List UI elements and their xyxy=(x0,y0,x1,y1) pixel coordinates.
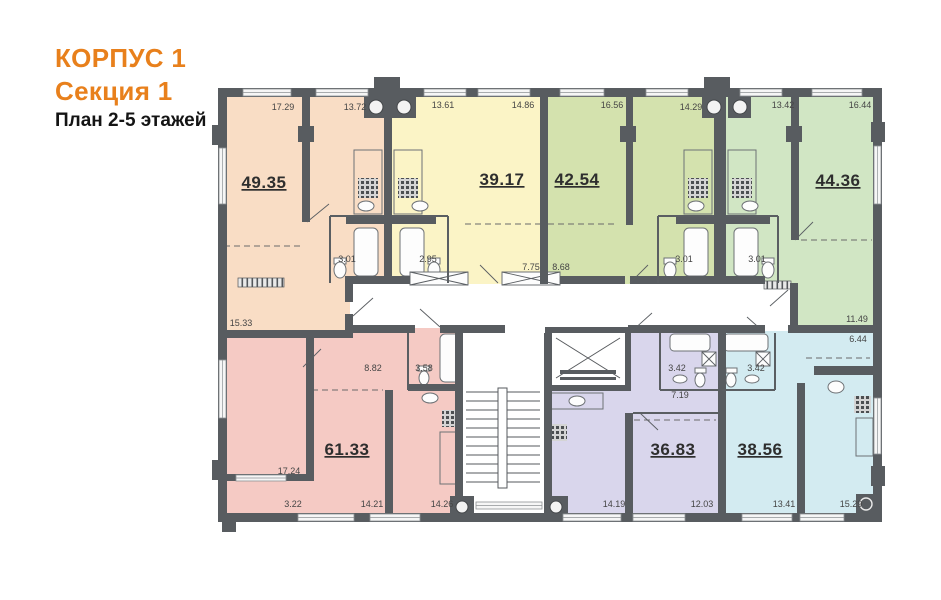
room-area-label-apt-44-36: 13.42 xyxy=(772,100,795,110)
sink-icon xyxy=(828,381,844,393)
toilet-icon xyxy=(334,262,346,278)
area-label-apt-39-17: 39.17 xyxy=(479,170,524,189)
room-area-label-apt-42-54: 3.01 xyxy=(675,254,693,264)
area-label-apt-44-36: 44.36 xyxy=(815,171,860,190)
room-area-label-apt-44-36: 11.49 xyxy=(846,314,868,324)
room-area-label-apt-36-83: 7.19 xyxy=(671,390,689,400)
room-area-label-apt-61-33: 17.24 xyxy=(278,466,301,476)
room-area-label-apt-36-83: 3.42 xyxy=(668,363,686,373)
bathtub-icon xyxy=(670,334,710,351)
toilet-icon xyxy=(419,371,429,385)
room-area-label-apt-49-35: 17.29 xyxy=(272,102,295,112)
elevator-shaft xyxy=(548,330,628,388)
room-area-label-apt-49-35: 3.01 xyxy=(338,254,356,264)
bathtub-icon xyxy=(734,228,758,276)
page: КОРПУС 1 Секция 1 План 2-5 этажей xyxy=(0,0,941,600)
sink-icon xyxy=(422,393,438,403)
room-area-label-apt-44-36: 16.44 xyxy=(849,100,872,110)
room-area-label-apt-36-83: 14.19 xyxy=(603,499,626,509)
bathtub-icon xyxy=(354,228,378,276)
room-area-label-apt-44-36: 3.01 xyxy=(748,254,766,264)
stove-icon xyxy=(358,178,378,198)
toilet-icon xyxy=(664,262,676,278)
sink-icon xyxy=(673,375,687,383)
room-area-label-apt-61-33: 14.21 xyxy=(361,499,384,509)
room-area-label-apt-39-17: 2.95 xyxy=(419,254,437,264)
area-label-apt-49-35: 49.35 xyxy=(241,173,286,192)
room-area-label-apt-49-35: 15.33 xyxy=(230,318,253,328)
area-label-apt-36-83: 36.83 xyxy=(650,440,695,459)
room-area-label-apt-39-17: 7.75 xyxy=(522,262,540,272)
room-area-label-apt-42-54: 14.29 xyxy=(680,102,703,112)
sink-icon xyxy=(745,375,759,383)
toilet-icon xyxy=(695,373,705,387)
stair-stringer xyxy=(498,388,507,488)
room-area-label-apt-61-33: 14.26 xyxy=(431,499,454,509)
room-area-label-apt-38-56: 6.44 xyxy=(849,334,867,344)
room-area-label-apt-38-56: 15.29 xyxy=(840,499,863,509)
area-label-apt-42-54: 42.54 xyxy=(554,170,599,189)
stove-icon xyxy=(732,178,752,198)
area-label-apt-61-33: 61.33 xyxy=(324,440,369,459)
staircase xyxy=(466,388,540,488)
toilet-icon xyxy=(762,262,774,278)
bathtub-icon xyxy=(400,228,424,276)
sink-icon xyxy=(358,201,374,211)
region-apt-61-33 xyxy=(222,328,459,518)
bathtub-icon xyxy=(724,334,768,351)
floor-plan: 49.3517.2913.723.0115.3339.1713.6114.862… xyxy=(0,0,941,600)
stove-icon xyxy=(398,178,418,198)
room-area-label-apt-42-54: 16.56 xyxy=(601,100,624,110)
sink-icon xyxy=(569,396,585,406)
bathtub-icon xyxy=(684,228,708,276)
room-area-label-apt-36-83: 12.03 xyxy=(691,499,714,509)
room-area-label-apt-49-35: 13.72 xyxy=(344,102,367,112)
stove-icon xyxy=(688,178,708,198)
room-area-label-apt-38-56: 3.42 xyxy=(747,363,765,373)
room-area-label-apt-39-17: 14.86 xyxy=(512,100,535,110)
area-label-apt-38-56: 38.56 xyxy=(737,440,782,459)
room-area-label-apt-61-33: 8.82 xyxy=(364,363,382,373)
sink-icon xyxy=(412,201,428,211)
sink-icon xyxy=(742,201,758,211)
room-area-label-apt-39-17: 13.61 xyxy=(432,100,455,110)
stove-icon xyxy=(550,424,567,441)
room-area-label-apt-61-33: 3.58 xyxy=(415,363,433,373)
room-area-label-apt-61-33: 3.22 xyxy=(284,499,302,509)
room-area-label-apt-42-54: 8.68 xyxy=(552,262,570,272)
stove-icon xyxy=(854,396,871,413)
room-area-label-apt-38-56: 13.41 xyxy=(773,499,796,509)
toilet-icon xyxy=(726,373,736,387)
sink-icon xyxy=(688,201,704,211)
